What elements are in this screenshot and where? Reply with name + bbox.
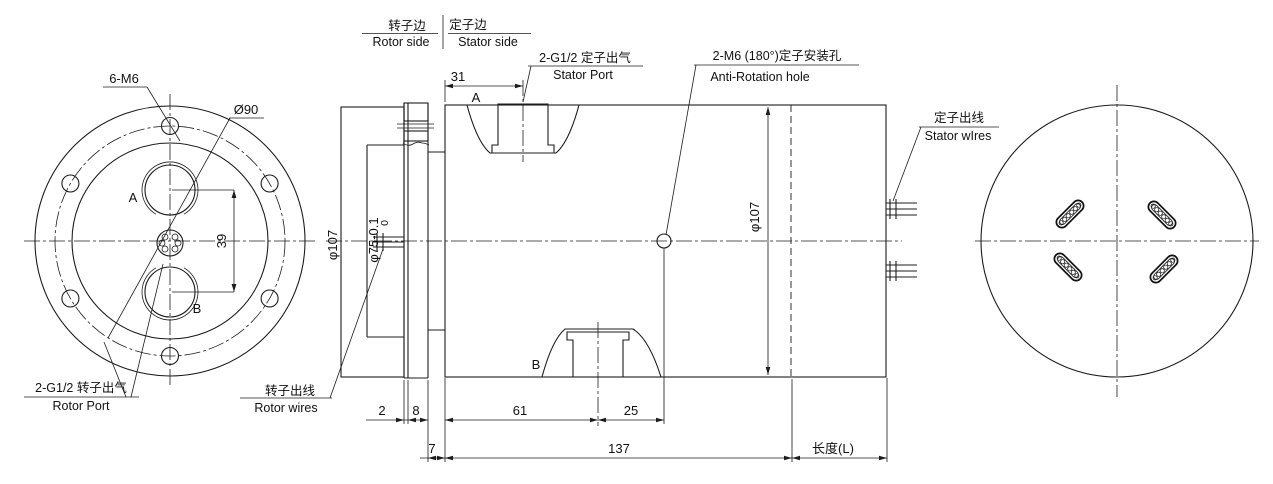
port-b-front-label: B xyxy=(193,301,202,316)
flange-dia-text: φ107 xyxy=(325,230,340,260)
port-b-section-label: B xyxy=(532,357,541,372)
section-view: 转子边 Rotor side 定子边 Stator side xyxy=(240,15,999,462)
connector-slot-lower-right xyxy=(1148,253,1180,285)
dim-137-text: 137 xyxy=(608,441,630,456)
stator-port-en-text: Stator Port xyxy=(553,68,613,82)
dim-39-text: 39 xyxy=(214,234,229,248)
dim-61-text: 61 xyxy=(513,403,527,418)
rotor-flange xyxy=(341,103,445,378)
dim-25-text: 25 xyxy=(624,403,638,418)
boss-tol-upper-text: 0 xyxy=(379,220,391,226)
engineering-drawing-canvas: 39 6-M6 Ø90 A B 2-G1/2 转子出气 Rotor Port 转… xyxy=(0,0,1273,484)
side-header: 转子边 Rotor side 定子边 Stator side xyxy=(362,15,531,49)
dim-8-text: 8 xyxy=(412,403,419,418)
rotor-port-cn-text: 2-G1/2 转子出气 xyxy=(35,380,127,395)
stator-wires-cn-text: 定子出线 xyxy=(934,110,985,125)
dim-length-l-text: 长度(L) xyxy=(812,441,854,456)
connector-slot-upper-left xyxy=(1054,198,1086,230)
front-view: 39 6-M6 Ø90 A B 2-G1/2 转子出气 Rotor Port xyxy=(24,71,316,413)
dim-stator-port-offset: 31 xyxy=(445,69,523,102)
stator-side-cn-text: 定子边 xyxy=(449,17,487,32)
bolt-callout-text: 6-M6 xyxy=(109,71,139,86)
stator-port-cn-text: 2-G1/2 定子出气 xyxy=(539,50,631,65)
anti-rotation-cn-text: 2-M6 (180°)定子安装孔 xyxy=(713,48,842,63)
anti-rotation-en-text: Anti-Rotation hole xyxy=(710,70,809,84)
body-dia-text: φ107 xyxy=(747,202,762,232)
rotor-side-cn-text: 转子边 xyxy=(388,18,426,33)
rotor-wires-en-text: Rotor wires xyxy=(254,401,317,415)
bolt-circle-dia-text: Ø90 xyxy=(234,102,259,117)
dim-2-text: 2 xyxy=(378,403,385,418)
connector-slot-upper-right xyxy=(1146,199,1178,231)
port-a-section-label: A xyxy=(472,90,481,105)
port-b-section: B xyxy=(532,322,661,426)
port-a-section: A 2-G1/2 定子出气 Stator Port xyxy=(467,50,643,162)
rotor-port-callout: 2-G1/2 转子出气 Rotor Port xyxy=(24,264,163,413)
dim-7-text: 7 xyxy=(428,441,435,456)
stator-wires-en-text: Stator wIres xyxy=(925,129,992,143)
rotor-wires-cn-text: 转子出线 xyxy=(265,383,316,398)
dim-31-text: 31 xyxy=(451,69,465,84)
slip-ring-drawing: 39 6-M6 Ø90 A B 2-G1/2 转子出气 Rotor Port 转… xyxy=(0,0,1273,484)
anti-rotation-hole: 2-M6 (180°)定子安装孔 Anti-Rotation hole xyxy=(657,48,859,424)
bolt-circle-callout: Ø90 xyxy=(108,102,264,338)
stator-side-en-text: Stator side xyxy=(458,35,518,49)
port-a-front-label: A xyxy=(129,190,138,205)
rear-view xyxy=(975,85,1259,397)
connector-slot-lower-left xyxy=(1052,251,1084,283)
stator-wire-group-lower xyxy=(886,261,917,281)
front-view-outline xyxy=(24,94,316,388)
rotor-port-en-text: Rotor Port xyxy=(53,399,110,413)
stator-wire-group-upper xyxy=(886,199,917,219)
rotor-side-en-text: Rotor side xyxy=(373,35,430,49)
